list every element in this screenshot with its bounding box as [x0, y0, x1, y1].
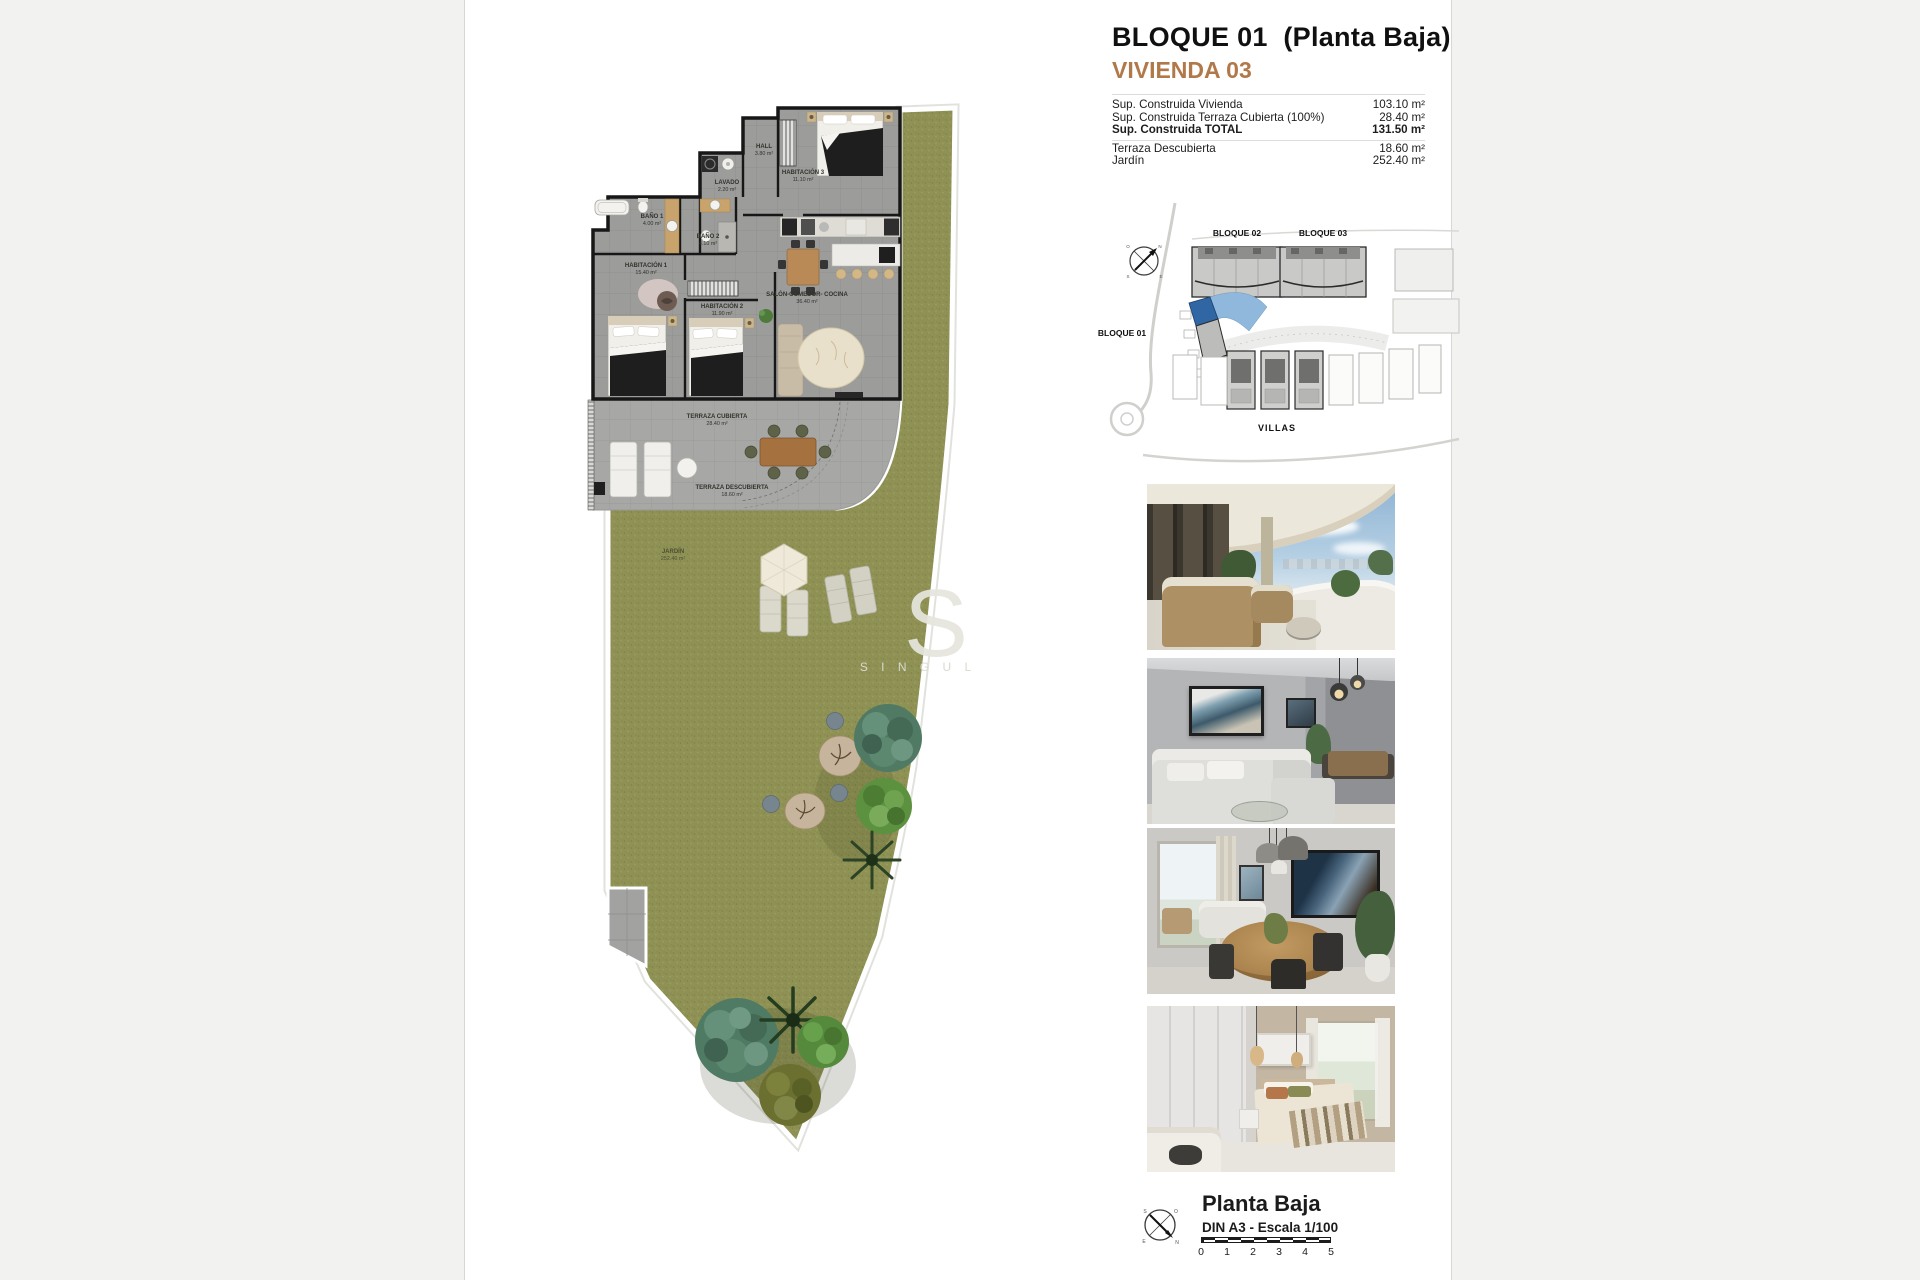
footer-title: Planta Baja	[1202, 1191, 1321, 1217]
plant	[1355, 891, 1395, 961]
pendant-lamp	[1271, 860, 1287, 874]
round-table	[1286, 617, 1321, 639]
svg-text:S: S	[1143, 1209, 1147, 1215]
room-label: LAVADO	[715, 180, 740, 186]
chair	[1313, 933, 1343, 971]
wardrobe	[688, 281, 738, 296]
chair	[1271, 959, 1306, 989]
scale-tick: 5	[1326, 1246, 1336, 1258]
pillow	[1266, 1087, 1288, 1099]
row-label: Jardín	[1112, 155, 1144, 168]
table-row: Sup. Construida Vivienda 103.10 m²	[1112, 99, 1425, 112]
wicker-chair	[1251, 585, 1293, 623]
watermark-text: S I N G U L	[860, 660, 976, 674]
footer-scale-label: DIN A3 - Escala 1/100	[1202, 1220, 1338, 1235]
pendant-lamp	[1250, 1046, 1264, 1066]
svg-text:28.40 m²: 28.40 m²	[706, 421, 727, 427]
bloque-03-building	[1280, 247, 1366, 297]
wall-art	[1286, 698, 1316, 728]
photo-dining-area	[1147, 828, 1395, 994]
terrace-view	[1162, 908, 1192, 935]
wardrobe	[780, 120, 796, 166]
wicker-sofa	[1162, 577, 1261, 647]
plan-sheet-page: S S I N G U L	[464, 0, 1452, 1280]
pillar	[1261, 517, 1273, 587]
svg-text:11.10 m²: 11.10 m²	[793, 177, 814, 183]
bloque03-label: BLOQUE 03	[1299, 228, 1347, 238]
pendant-lamp	[1330, 683, 1348, 701]
scale-tick: 4	[1300, 1246, 1310, 1258]
pillow	[1288, 1086, 1310, 1098]
room-label: HABITACIÓN 1	[625, 261, 668, 269]
paved-corner	[608, 888, 646, 966]
dining-table	[1328, 751, 1388, 776]
bloque01-label: BLOQUE 01	[1098, 328, 1146, 338]
svg-text:S: S	[1126, 274, 1129, 279]
svg-text:E: E	[1159, 274, 1162, 279]
svg-text:N: N	[1158, 244, 1161, 249]
wall-art	[1189, 686, 1263, 736]
plant-pot	[1365, 954, 1390, 982]
svg-text:4.10 m²: 4.10 m²	[699, 241, 717, 247]
scale-bar-row	[1202, 1240, 1330, 1242]
pendant-lamp	[1278, 836, 1308, 860]
cushion	[1207, 761, 1244, 779]
room-label: BAÑO 1	[641, 213, 664, 220]
room-label: SALÓN-COMEDOR- COCINA	[766, 290, 848, 298]
scale-tick: 2	[1248, 1246, 1258, 1258]
bloque02-label: BLOQUE 02	[1213, 228, 1261, 238]
table-divider	[1112, 140, 1425, 141]
cushion	[1167, 763, 1204, 781]
row-label: Sup. Construida Vivienda	[1112, 99, 1243, 112]
compass-icon: S O E N	[1137, 1202, 1183, 1248]
lamp-cord	[1256, 1006, 1257, 1046]
pendant-lamp	[1350, 675, 1365, 690]
svg-text:11.90 m²: 11.90 m²	[712, 311, 733, 317]
lamp-cord	[1339, 658, 1340, 685]
svg-text:2.20 m²: 2.20 m²	[718, 187, 736, 193]
lamp-cord	[1296, 1006, 1297, 1052]
svg-text:15.40 m²: 15.40 m²	[635, 270, 656, 276]
row-label: Sup. Construida TOTAL	[1112, 124, 1242, 137]
apartment	[593, 108, 900, 399]
room-label: BAÑO 2	[697, 233, 720, 240]
villas-label: VILLAS	[1258, 423, 1296, 433]
photo-bedroom	[1147, 1006, 1395, 1172]
curtain	[1375, 1018, 1390, 1128]
svg-text:E: E	[1142, 1239, 1146, 1245]
floor-plan: S S I N G U L	[588, 104, 967, 1176]
throw-blanket	[1169, 1145, 1201, 1165]
room-label: HABITACIÓN 3	[782, 168, 825, 176]
svg-text:O: O	[1174, 1209, 1178, 1215]
nightstand	[1239, 1109, 1259, 1129]
svg-text:252.40 m²: 252.40 m²	[661, 556, 685, 562]
svg-text:N: N	[1175, 1240, 1179, 1246]
row-value: 131.50 m²	[1372, 124, 1425, 137]
photo-terrace-exterior	[1147, 484, 1395, 650]
room-label: HABITACIÓN 2	[701, 302, 744, 310]
unit-subtitle: VIVIENDA 03	[1112, 57, 1252, 84]
page-title: BLOQUE 01 (Planta Baja)	[1112, 22, 1451, 53]
table-row: Jardín 252.40 m²	[1112, 155, 1425, 168]
svg-text:36.40 m²: 36.40 m²	[796, 299, 817, 305]
site-plan: N S O E BLOQUE 02 BLOQUE 03 BLOQUE 01 VI…	[1077, 203, 1459, 477]
row-value: 252.40 m²	[1373, 155, 1425, 168]
scale-tick: 3	[1274, 1246, 1284, 1258]
chair	[1209, 944, 1234, 979]
photo-living-room	[1147, 658, 1395, 824]
scale-tick: 0	[1196, 1246, 1206, 1258]
wall-art	[1239, 865, 1264, 902]
row-value: 103.10 m²	[1373, 99, 1425, 112]
svg-text:3.80 m²: 3.80 m²	[755, 151, 773, 157]
sheet-background: S S I N G U L	[0, 0, 1920, 1280]
svg-text:18.60 m²: 18.60 m²	[721, 492, 742, 498]
fence-strip	[588, 400, 594, 510]
rug	[798, 328, 864, 388]
compass-icon: N S O E	[1126, 244, 1162, 279]
scale-bar	[1201, 1237, 1331, 1243]
plant	[1331, 570, 1361, 597]
scale-tick: 1	[1222, 1246, 1232, 1258]
surface-table: Sup. Construida Vivienda 103.10 m² Sup. …	[1112, 94, 1425, 168]
terrace-dining-table	[760, 438, 816, 466]
lamp-cord	[1357, 658, 1358, 676]
room-label: HALL	[756, 144, 772, 150]
svg-text:O: O	[1126, 244, 1130, 249]
room-label: TERRAZA CUBIERTA	[687, 414, 748, 420]
room-label: TERRAZA DESCUBIERTA	[696, 485, 770, 491]
svg-text:4.00 m²: 4.00 m²	[643, 221, 661, 227]
room-label: JARDÍN	[662, 547, 684, 555]
bloque-02-building	[1192, 247, 1282, 297]
table-row-total: Sup. Construida TOTAL 131.50 m²	[1112, 124, 1425, 137]
